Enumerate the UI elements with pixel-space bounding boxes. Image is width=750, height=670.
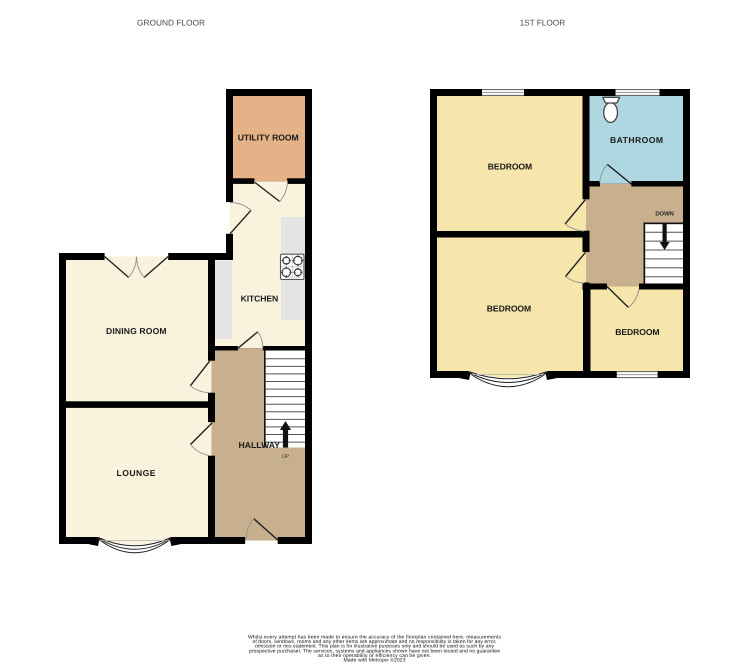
svg-text:GROUND FLOOR: GROUND FLOOR bbox=[137, 18, 205, 28]
svg-text:BEDROOM: BEDROOM bbox=[487, 304, 531, 314]
svg-text:DOWN: DOWN bbox=[655, 211, 673, 218]
svg-text:HALLWAY: HALLWAY bbox=[238, 440, 280, 450]
svg-text:BEDROOM: BEDROOM bbox=[615, 327, 659, 337]
svg-text:1ST FLOOR: 1ST FLOOR bbox=[520, 18, 566, 28]
svg-text:UP: UP bbox=[282, 454, 290, 460]
svg-text:KITCHEN: KITCHEN bbox=[241, 294, 279, 304]
svg-text:LOUNGE: LOUNGE bbox=[117, 468, 156, 478]
svg-text:BEDROOM: BEDROOM bbox=[488, 162, 532, 172]
svg-text:BATHROOM: BATHROOM bbox=[610, 135, 663, 145]
svg-text:Made with Metropix ©2023: Made with Metropix ©2023 bbox=[344, 658, 406, 664]
svg-text:UTILITY ROOM: UTILITY ROOM bbox=[238, 133, 299, 143]
svg-text:DINING ROOM: DINING ROOM bbox=[106, 326, 167, 336]
